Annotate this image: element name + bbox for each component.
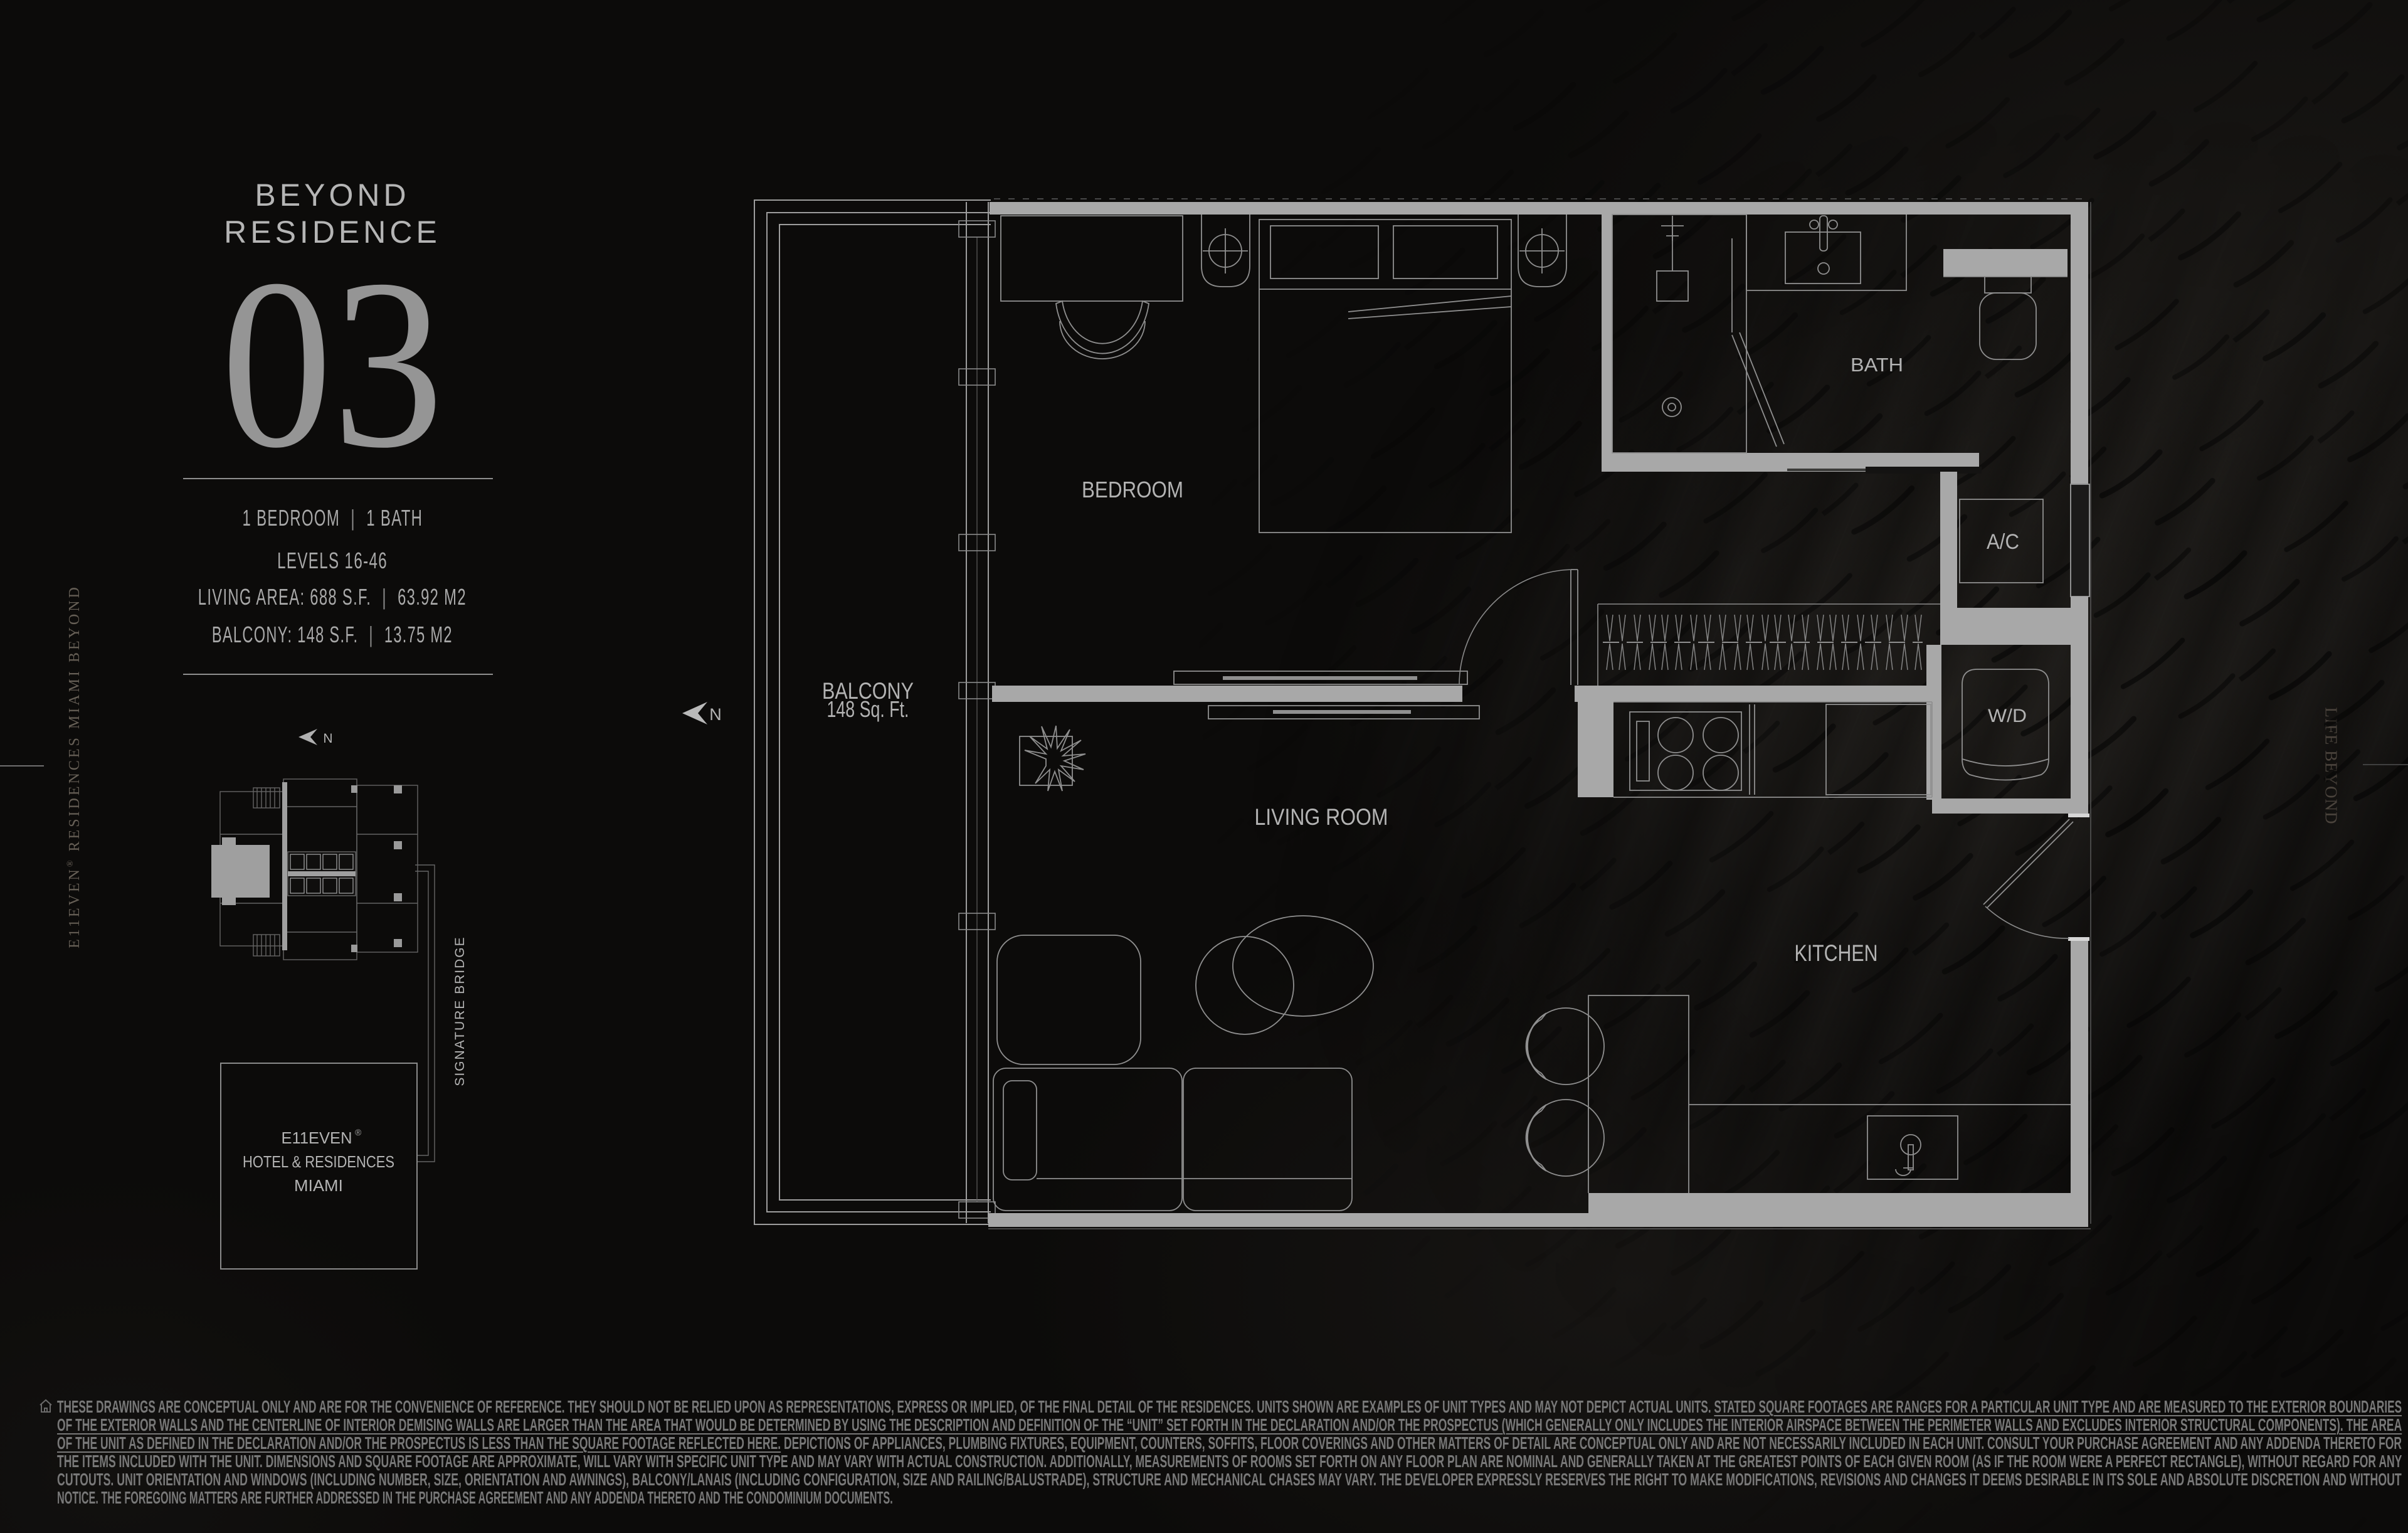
svg-text:148 Sq. Ft.: 148 Sq. Ft. [827, 696, 909, 722]
svg-text:N: N [323, 731, 332, 746]
svg-text:BATH: BATH [1851, 354, 1903, 376]
svg-text:LIVING ROOM: LIVING ROOM [1255, 804, 1388, 830]
svg-text:A/C: A/C [1987, 530, 2019, 554]
svg-text:HOTEL & RESIDENCES: HOTEL & RESIDENCES [243, 1152, 394, 1171]
svg-text:MIAMI: MIAMI [294, 1176, 343, 1195]
svg-text:N: N [709, 705, 722, 724]
svg-text:W/D: W/D [1988, 706, 2027, 726]
svg-text:SIGNATURE BRIDGE: SIGNATURE BRIDGE [453, 936, 467, 1086]
svg-text:BEDROOM: BEDROOM [1082, 477, 1183, 502]
svg-text:KITCHEN: KITCHEN [1795, 940, 1878, 966]
svg-text:E11EVEN: E11EVEN [282, 1128, 352, 1147]
svg-text:®: ® [355, 1127, 362, 1137]
